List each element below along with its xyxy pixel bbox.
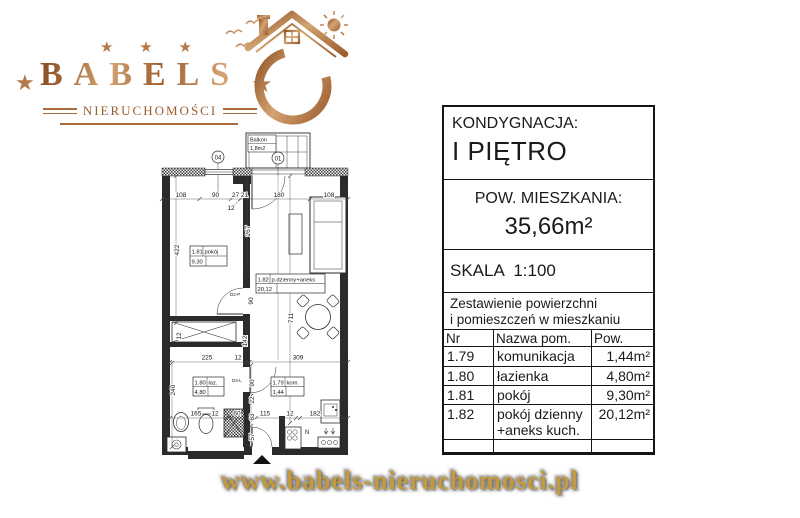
- table-cell-name: pokój dzienny +aneks kuch.: [494, 405, 592, 440]
- svg-text:21: 21: [241, 192, 249, 199]
- svg-text:180: 180: [274, 192, 285, 199]
- chair: [296, 294, 309, 307]
- svg-text:90: 90: [248, 297, 255, 305]
- table-cell-name: pokój: [494, 386, 592, 405]
- table-cell-area: 20,12m²: [592, 405, 653, 440]
- rooms-table: Nr pom. Nazwa pom. Pow. pom. 1.79 komuni…: [444, 330, 653, 453]
- tv-cabinet: [289, 214, 302, 254]
- svg-text:57: 57: [249, 433, 256, 441]
- axis-label-01: 01: [275, 157, 282, 163]
- svg-text:90: 90: [212, 192, 220, 199]
- room-182-nr: 1.82: [258, 278, 269, 284]
- vent-arrows-icon: [324, 428, 335, 434]
- table-cell-area: 4,80m²: [592, 367, 653, 386]
- chair: [326, 294, 339, 307]
- svg-text:225: 225: [202, 355, 213, 362]
- table-cell-area: 1,44m²: [592, 347, 653, 367]
- svg-text:12: 12: [176, 332, 183, 340]
- scale-section: SKALA 1:100: [444, 250, 653, 293]
- svg-text:12: 12: [211, 411, 219, 418]
- svg-text:12: 12: [227, 205, 235, 212]
- balcony-area: 1,8m2: [250, 146, 265, 152]
- chair: [326, 326, 339, 339]
- room-181-nr: 1.81: [192, 250, 203, 256]
- svg-text:60: 60: [233, 411, 241, 418]
- dining-table: [306, 305, 331, 330]
- floor-label: KONDYGNACJA:: [452, 115, 653, 133]
- room-180-name: łaz.: [209, 381, 218, 387]
- area-section: POW. MIESZKANIA: 35,66m²: [444, 180, 653, 250]
- svg-text:165: 165: [191, 411, 202, 418]
- svg-text:182: 182: [310, 411, 321, 418]
- svg-text:108: 108: [176, 192, 187, 199]
- svg-text:711: 711: [288, 312, 295, 323]
- svg-text:115: 115: [260, 411, 271, 418]
- apartment-area-label: POW. MIESZKANIA:: [444, 190, 653, 208]
- room-name-line1: pokój dzienny: [497, 406, 589, 422]
- table-cell-name: łazienka: [494, 367, 592, 386]
- summary-section: Zestawienie powierzchni i pomieszczeń w …: [444, 293, 653, 330]
- svg-text:12: 12: [286, 411, 294, 418]
- table-cell-area: 9,30m²: [592, 386, 653, 405]
- svg-text:63: 63: [249, 413, 256, 421]
- svg-text:90: 90: [249, 379, 256, 387]
- table-cell-empty: [444, 440, 494, 453]
- summary-line2: i pomieszczeń w mieszkaniu: [450, 312, 653, 328]
- col-header-nr: Nr pom.: [444, 330, 494, 347]
- axis-label-04: 04: [215, 156, 222, 162]
- room-180-nr: 1.80: [195, 381, 206, 387]
- svg-text:108: 108: [324, 192, 335, 199]
- floor-plan: Balkon 1,8m2 04 01: [0, 0, 800, 518]
- door-label-d2p: D2-P: [230, 292, 240, 297]
- balcony-label: Balkon: [250, 138, 267, 144]
- col-header-name: Nazwa pom.: [494, 330, 592, 347]
- chair: [296, 326, 309, 339]
- table-cell-name: komunikacja: [494, 347, 592, 367]
- room-179-nr: 1.79: [273, 381, 284, 387]
- svg-text:240: 240: [170, 384, 177, 395]
- room-181-name: pokój: [205, 250, 219, 256]
- col-header-area: Pow. pom.: [592, 330, 653, 347]
- table-cell-empty: [494, 440, 592, 453]
- room-182-area: 20,12: [258, 287, 273, 293]
- summary-line1: Zestawienie powierzchni: [450, 296, 653, 312]
- room-179-name: kom.: [287, 381, 300, 387]
- room-180-area: 4,80: [195, 390, 206, 396]
- kitchen-mark: N: [305, 430, 309, 436]
- entrance-arrow-icon: [253, 455, 271, 464]
- svg-text:267: 267: [245, 225, 252, 236]
- door-label-d3l: D3-L: [232, 378, 242, 383]
- svg-text:309: 309: [293, 355, 304, 362]
- room-179-area: 1,44: [273, 390, 285, 396]
- svg-text:12: 12: [234, 355, 242, 362]
- website-url: www.babels-nieruchomosci.pl: [0, 466, 800, 496]
- floor-section: KONDYGNACJA: I PIĘTRO: [444, 107, 653, 180]
- room-182-name: p.dzienny+aneks: [272, 278, 316, 284]
- apartment-area-value: 35,66m²: [444, 213, 653, 241]
- svg-text:142: 142: [242, 335, 249, 346]
- table-cell-empty: [592, 440, 653, 453]
- svg-text:422: 422: [174, 244, 181, 255]
- table-cell-nr: 1.82: [444, 405, 494, 440]
- scale-label: SKALA 1:100: [450, 261, 653, 281]
- room-name-line2: +aneks kuch.: [497, 422, 589, 438]
- table-cell-nr: 1.80: [444, 367, 494, 386]
- table-cell-nr: 1.79: [444, 347, 494, 367]
- floor-value: I PIĘTRO: [452, 136, 653, 167]
- table-cell-nr: 1.81: [444, 386, 494, 405]
- info-panel: KONDYGNACJA: I PIĘTRO POW. MIESZKANIA: 3…: [442, 105, 655, 455]
- svg-text:27: 27: [232, 192, 240, 199]
- svg-text:22: 22: [249, 396, 256, 404]
- room-181-area: 9,30: [192, 260, 203, 266]
